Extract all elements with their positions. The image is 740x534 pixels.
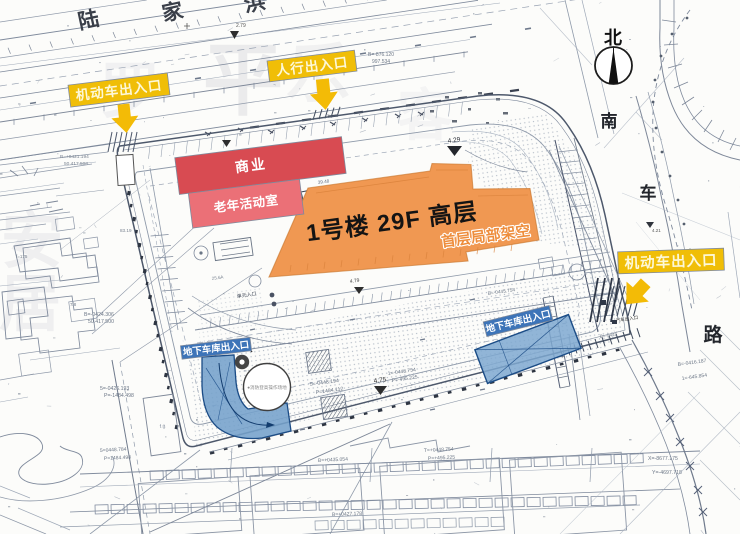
svg-text:车: 车 (640, 183, 657, 203)
svg-text:B=+0427.178: B=+0427.178 (332, 511, 362, 518)
svg-text:路: 路 (703, 323, 723, 346)
svg-text:f=175: f=175 (16, 254, 28, 259)
svg-text:997.534: 997.534 (372, 59, 390, 65)
svg-text:北: 北 (604, 28, 622, 48)
svg-text:X=-8677.175: X=-8677.175 (648, 456, 678, 462)
svg-text:83.19: 83.19 (120, 228, 132, 233)
svg-text:50.417.500: 50.417.500 (88, 319, 114, 325)
svg-text:f.g: f.g (159, 423, 166, 430)
svg-text:安: 安 (1, 207, 63, 276)
svg-text:7/8: 7/8 (70, 302, 77, 307)
svg-text:4.21: 4.21 (652, 228, 661, 233)
svg-text:居: 居 (0, 270, 61, 339)
svg-text:B=-876.120: B=-876.120 (368, 52, 394, 58)
svg-text:南: 南 (601, 111, 618, 131)
svg-text:B=+0421.194: B=+0421.194 (60, 154, 89, 160)
svg-text:2.79: 2.79 (236, 23, 246, 29)
svg-text:●消防登高操作场地: ●消防登高操作场地 (247, 384, 287, 391)
svg-text:B=-0424.306: B=-0424.306 (84, 312, 114, 318)
